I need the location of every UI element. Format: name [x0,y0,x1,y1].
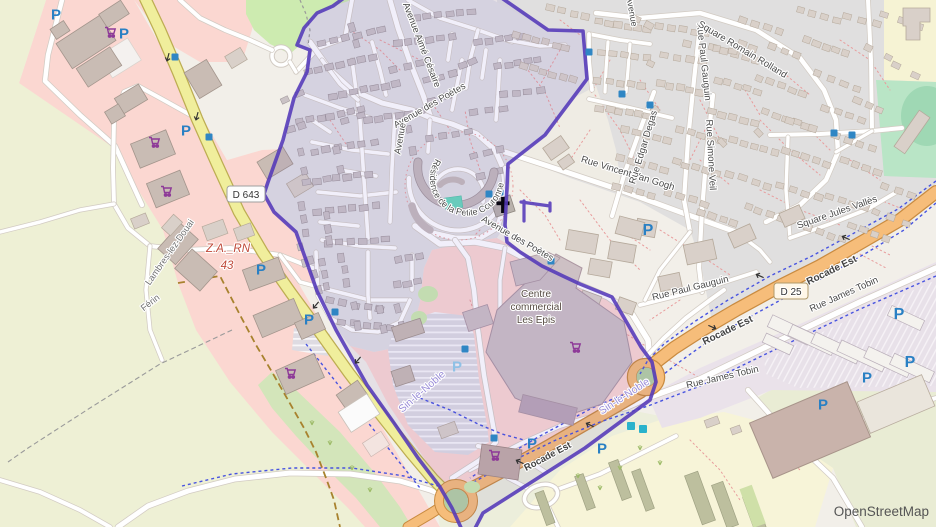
svg-text:P: P [181,122,191,139]
svg-text:D 25: D 25 [780,287,802,298]
svg-text:Z.A._RN: Z.A._RN [205,243,251,255]
svg-text:D 643: D 643 [233,190,260,201]
svg-text:P: P [905,354,916,371]
svg-text:P: P [256,261,266,278]
svg-text:P: P [643,222,654,239]
svg-text:P: P [597,440,607,457]
svg-text:commercial: commercial [510,302,561,313]
svg-text:43: 43 [221,260,234,272]
svg-text:P: P [894,306,905,323]
svg-text:P: P [304,311,314,328]
svg-text:P: P [51,6,61,23]
svg-text:Les Epis: Les Epis [517,315,555,326]
svg-text:OpenStreetMap: OpenStreetMap [834,504,929,519]
svg-text:Centre: Centre [521,289,551,300]
svg-text:P: P [862,369,872,386]
svg-text:P: P [452,358,462,375]
svg-text:P: P [527,435,537,452]
svg-text:P: P [119,25,129,42]
svg-text:P: P [818,396,828,413]
